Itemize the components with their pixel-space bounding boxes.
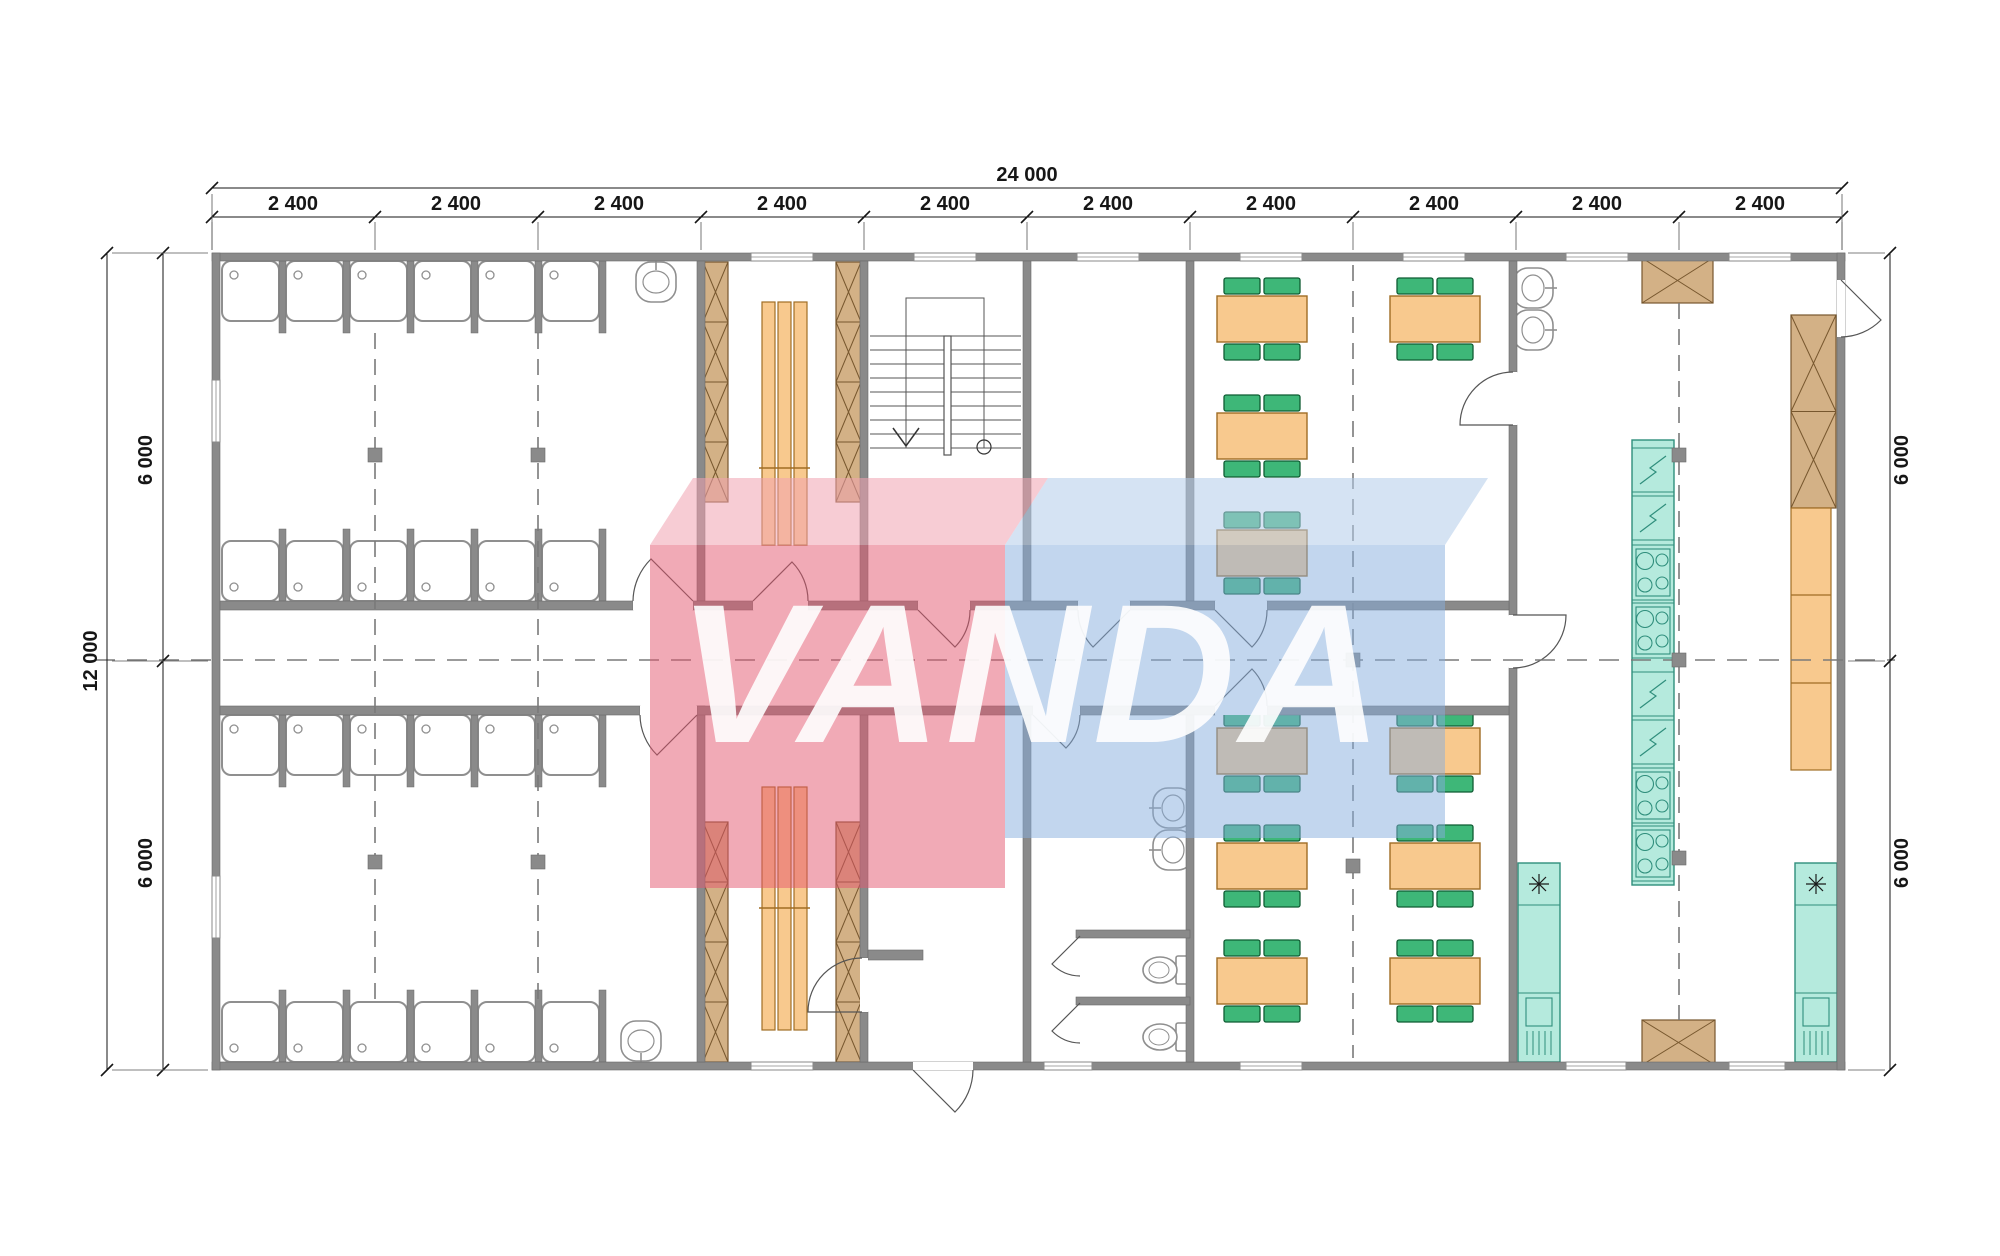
column-marker: [531, 855, 545, 869]
shower-partition: [535, 990, 542, 1062]
toilet-icon: [1143, 956, 1188, 984]
kitchen-counter: [1791, 508, 1831, 770]
shower-drain-icon: [422, 271, 430, 279]
shower-drain-icon: [294, 725, 302, 733]
shower-stall: [414, 1002, 471, 1062]
chair: [1264, 940, 1300, 956]
dim-bay-label: 2 400: [431, 193, 481, 215]
door-swing: [1052, 1003, 1080, 1043]
shower-drain-icon: [294, 1044, 302, 1052]
shower-drain-icon: [550, 725, 558, 733]
shower-partition: [343, 261, 350, 333]
shower-partition: [279, 990, 286, 1062]
column-marker: [1672, 448, 1686, 462]
dim-bay-label: 2 400: [1246, 193, 1296, 215]
chair: [1397, 940, 1433, 956]
chair: [1397, 891, 1433, 907]
dim-bay-label: 2 400: [1083, 193, 1133, 215]
wall: [1076, 997, 1190, 1005]
dim-total-height: 12 000: [80, 630, 102, 691]
shower-drain-icon: [294, 583, 302, 591]
shower-stall: [286, 715, 343, 775]
wall: [1837, 253, 1845, 1070]
shower-partition: [407, 261, 414, 333]
kitchen-island: [1632, 440, 1674, 885]
shower-stall: [286, 261, 343, 321]
chair: [1397, 1006, 1433, 1022]
shower-drain-icon: [550, 271, 558, 279]
dim-bay-label: 2 400: [920, 193, 970, 215]
wall: [220, 601, 633, 610]
shower-drain-icon: [230, 583, 238, 591]
shower-partition: [279, 715, 286, 787]
washbasin-icon: [621, 1021, 661, 1065]
shower-partition: [407, 715, 414, 787]
door-opening: [1837, 280, 1845, 337]
chair: [1264, 344, 1300, 360]
shower-partition: [471, 529, 478, 601]
column-marker: [368, 855, 382, 869]
washbasin-icon: [636, 258, 676, 302]
chair: [1224, 940, 1260, 956]
dim-right-bottom: 6 000: [1891, 838, 1913, 888]
dining-table: [1390, 958, 1480, 1004]
shower-drain-icon: [294, 271, 302, 279]
floor-plan-page: 24 000 12 000 6 000 6 000 6 000 6 000 2 …: [0, 0, 2000, 1256]
shower-drain-icon: [230, 271, 238, 279]
shower-partition: [471, 715, 478, 787]
chair: [1224, 278, 1260, 294]
watermark-blue-top-face: [1005, 478, 1488, 545]
shower-partition: [343, 529, 350, 601]
dim-right-top: 6 000: [1891, 435, 1913, 485]
wall: [212, 253, 220, 1070]
shower-stall: [222, 261, 279, 321]
chair: [1437, 940, 1473, 956]
chair: [1397, 344, 1433, 360]
dim-total-width: 24 000: [996, 164, 1057, 186]
shower-drain-icon: [486, 271, 494, 279]
shower-stall: [222, 541, 279, 601]
shower-partition: [343, 715, 350, 787]
door-opening: [913, 1062, 973, 1070]
chair: [1224, 1006, 1260, 1022]
chair: [1264, 395, 1300, 411]
shower-partition: [599, 715, 606, 787]
toilet-bowl: [1143, 1024, 1177, 1050]
shower-stall: [350, 261, 407, 321]
shower-drain-icon: [486, 583, 494, 591]
shower-partition: [599, 261, 606, 333]
dim-bay-label: 2 400: [1572, 193, 1622, 215]
chair: [1224, 461, 1260, 477]
shower-partition: [535, 529, 542, 601]
shower-stall: [222, 715, 279, 775]
shower-partition: [279, 529, 286, 601]
dim-bay-label: 2 400: [594, 193, 644, 215]
shower-stall: [414, 541, 471, 601]
wall: [220, 706, 640, 715]
shower-drain-icon: [550, 583, 558, 591]
shower-stall: [222, 1002, 279, 1062]
shower-stall: [478, 715, 535, 775]
shower-stall: [414, 715, 471, 775]
shower-drain-icon: [230, 725, 238, 733]
watermark: VANDA: [650, 478, 1488, 888]
shower-partition: [471, 990, 478, 1062]
shower-stall: [478, 1002, 535, 1062]
shower-stall: [478, 541, 535, 601]
door-opening: [1509, 372, 1517, 425]
shower-drain-icon: [358, 583, 366, 591]
shower-drain-icon: [358, 271, 366, 279]
shower-stall: [350, 1002, 407, 1062]
shower-drain-icon: [486, 1044, 494, 1052]
watermark-red-top-face: [650, 478, 1048, 545]
dim-bay-label: 2 400: [1735, 193, 1785, 215]
door-swing: [1460, 372, 1513, 425]
dining-table: [1217, 413, 1307, 459]
column-marker: [531, 448, 545, 462]
shower-partition: [599, 990, 606, 1062]
shower-stall: [350, 715, 407, 775]
chair: [1264, 461, 1300, 477]
dim-left-bottom: 6 000: [135, 838, 157, 888]
dining-table: [1217, 958, 1307, 1004]
dining-table: [1390, 296, 1480, 342]
wall: [1509, 668, 1517, 1062]
chair: [1224, 344, 1260, 360]
washbasin-icon: [1513, 310, 1557, 350]
shower-stall: [542, 541, 599, 601]
toilet-bowl: [1143, 957, 1177, 983]
wall: [1076, 930, 1190, 938]
dim-bay-label: 2 400: [268, 193, 318, 215]
chair: [1264, 278, 1300, 294]
dim-bay-label: 2 400: [757, 193, 807, 215]
shower-drain-icon: [230, 1044, 238, 1052]
dim-bay-label: 2 400: [1409, 193, 1459, 215]
column-marker: [1346, 859, 1360, 873]
chair: [1264, 1006, 1300, 1022]
shower-stall: [286, 541, 343, 601]
shower-drain-icon: [422, 1044, 430, 1052]
door-opening: [860, 958, 868, 1012]
door-swing: [913, 1070, 973, 1112]
dining-table: [1217, 843, 1307, 889]
chair: [1437, 891, 1473, 907]
dining-table: [1217, 296, 1307, 342]
shower-stall: [478, 261, 535, 321]
watermark-text: VANDA: [677, 563, 1386, 784]
shower-partition: [279, 261, 286, 333]
chair: [1224, 395, 1260, 411]
shower-stall: [542, 1002, 599, 1062]
shower-partition: [343, 990, 350, 1062]
shower-partition: [407, 529, 414, 601]
shower-drain-icon: [422, 725, 430, 733]
chair: [1397, 278, 1433, 294]
chair: [1224, 891, 1260, 907]
shower-drain-icon: [550, 1044, 558, 1052]
shower-drain-icon: [486, 725, 494, 733]
shower-stall: [542, 715, 599, 775]
shower-partition: [407, 990, 414, 1062]
stair-rail: [944, 336, 951, 455]
toilet-icon: [1143, 1023, 1188, 1051]
dining-table: [1390, 843, 1480, 889]
shower-drain-icon: [358, 1044, 366, 1052]
shower-stall: [414, 261, 471, 321]
door-swing: [1052, 936, 1080, 976]
door-swing: [1841, 280, 1881, 337]
shower-stall: [350, 541, 407, 601]
wall: [1509, 425, 1517, 615]
shower-partition: [471, 261, 478, 333]
shower-partition: [599, 529, 606, 601]
column-marker: [1672, 851, 1686, 865]
wall: [868, 950, 923, 960]
chair: [1437, 344, 1473, 360]
floor-plan-svg: 24 000 12 000 6 000 6 000 6 000 6 000 2 …: [0, 0, 2000, 1256]
shower-partition: [535, 261, 542, 333]
wall: [860, 1012, 868, 1062]
shower-drain-icon: [358, 725, 366, 733]
shower-stall: [542, 261, 599, 321]
wall: [1509, 261, 1517, 372]
shower-stall: [286, 1002, 343, 1062]
dim-left-top: 6 000: [135, 435, 157, 485]
chair: [1264, 891, 1300, 907]
shower-drain-icon: [422, 583, 430, 591]
column-marker: [368, 448, 382, 462]
column-marker: [1672, 653, 1686, 667]
washbasin-icon: [1513, 268, 1557, 308]
chair: [1437, 1006, 1473, 1022]
chair: [1437, 278, 1473, 294]
